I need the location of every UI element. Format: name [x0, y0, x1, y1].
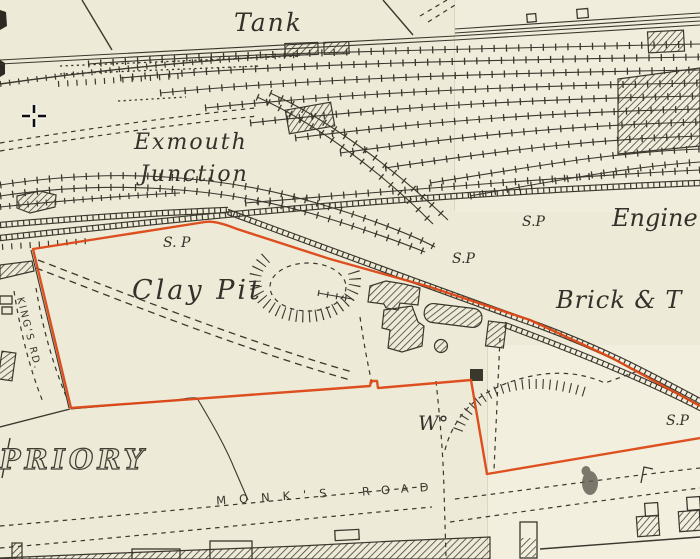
label-brick-works: Brick & T	[555, 286, 683, 314]
label-engine: Engine	[611, 204, 698, 232]
label-sp-1: S. P	[163, 235, 191, 251]
small-solid-building	[470, 369, 483, 381]
map-viewport[interactable]: Tank Exmouth Junction Clay Pit Engine Br…	[0, 0, 700, 559]
map-canvas[interactable]: Tank Exmouth Junction Clay Pit Engine Br…	[0, 0, 700, 559]
label-tank: Tank	[234, 8, 303, 37]
label-priory: OE PRIORY	[0, 443, 150, 476]
label-well: W°	[418, 411, 449, 435]
label-sp-4: S.P	[666, 413, 690, 429]
label-sp-3: S.P	[452, 251, 476, 267]
label-exmouth: Exmouth	[133, 130, 248, 155]
label-sp-2: S.P	[522, 214, 546, 230]
label-clay-pit: Clay Pit	[132, 275, 263, 306]
label-junction: Junction	[136, 162, 249, 187]
